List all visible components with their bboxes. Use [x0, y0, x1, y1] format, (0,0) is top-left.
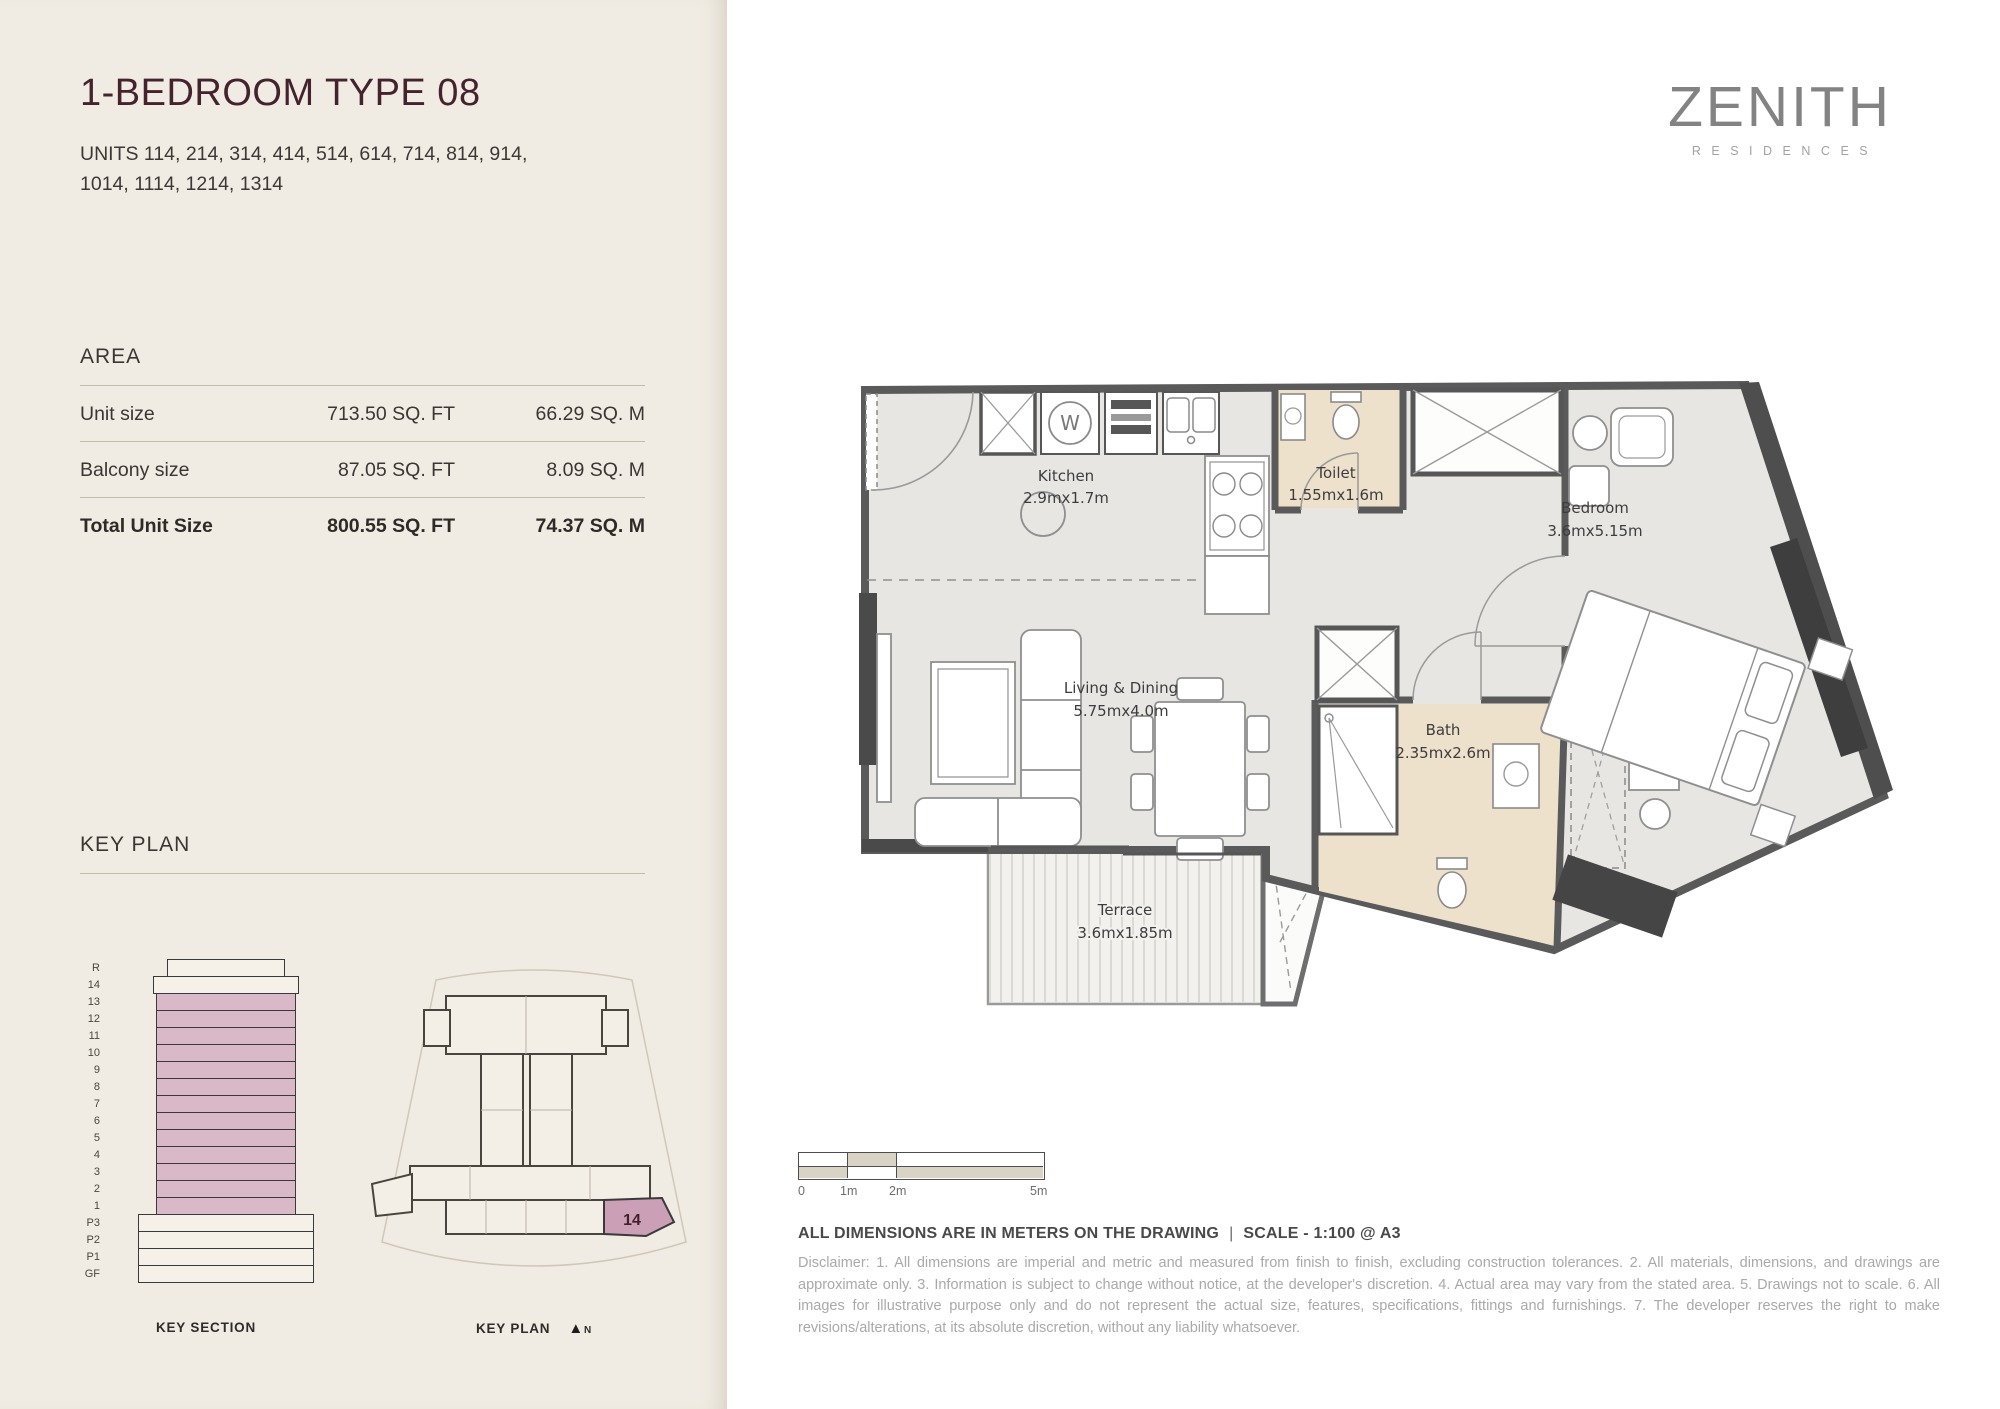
key-plan-unit-number: 14: [623, 1212, 641, 1229]
floor-box: [156, 1095, 296, 1114]
floor-box: [156, 1180, 296, 1199]
floor-label: 5: [70, 1130, 110, 1147]
floor-box: [138, 1248, 314, 1267]
desk-chair: [1640, 799, 1670, 829]
keyplan-heading: KEY PLAN: [80, 833, 645, 857]
floor-box: [156, 1112, 296, 1131]
floor-label: P1: [70, 1249, 110, 1266]
key-section-floor-1: 1: [70, 1198, 342, 1215]
key-section-floor-5: 5: [70, 1130, 342, 1147]
area-row-balcony-size: Balcony size 87.05 SQ. FT 8.09 SQ. M: [80, 442, 645, 497]
toilet-label: Toilet: [1315, 464, 1355, 482]
note-separator: |: [1219, 1225, 1243, 1242]
brand-logo: ZENITH RESIDENCES: [1652, 74, 1908, 158]
scale-bar: 0 1m 2m 5m: [798, 1152, 1048, 1202]
floor-label: P3: [70, 1215, 110, 1232]
floor-plan: W: [853, 378, 1900, 1040]
area-sqm: 8.09 SQ. M: [455, 459, 645, 482]
page-title: 1-BEDROOM TYPE 08: [80, 72, 481, 115]
floor-label: 14: [70, 977, 110, 994]
shaft-top: [1413, 390, 1561, 474]
page: 1-BEDROOM TYPE 08 UNITS 114, 214, 314, 4…: [0, 0, 2000, 1409]
floor-box: [156, 1197, 296, 1216]
floor-label: GF: [70, 1266, 110, 1283]
floor-label: 7: [70, 1096, 110, 1113]
key-section-floor-GF: GF: [70, 1266, 342, 1283]
key-section-diagram: R1413121110987654321P3P2P1GF: [70, 960, 342, 1283]
area-sqft: 800.55 SQ. FT: [265, 515, 455, 538]
area-row-unit-size: Unit size 713.50 SQ. FT 66.29 SQ. M: [80, 386, 645, 441]
bedroom-dims: 3.6mx5.15m: [1547, 522, 1642, 540]
key-section-floor-14: 14: [70, 977, 342, 994]
living-dining-label: Living & Dining: [1064, 679, 1178, 697]
coffee-table: [931, 662, 1015, 784]
terrace-label: Terrace: [1097, 901, 1153, 919]
floor-box: [156, 1027, 296, 1046]
key-section-floor-R: R: [70, 960, 342, 977]
stove-icon: [1105, 392, 1157, 454]
key-section-floor-P1: P1: [70, 1249, 342, 1266]
floor-box: [156, 1061, 296, 1080]
key-section-floor-2: 2: [70, 1181, 342, 1198]
floor-box: [138, 1214, 314, 1233]
floor-label: 12: [70, 1011, 110, 1028]
brand-name: ZENITH: [1652, 74, 1908, 140]
scale-tick-2m: 2m: [889, 1184, 906, 1198]
floor-box: [138, 1265, 314, 1284]
disclaimer-text: Disclaimer: 1. All dimensions are imperi…: [798, 1253, 1940, 1339]
floor-box: [167, 959, 285, 978]
floor-label: R: [70, 960, 110, 977]
area-label: Balcony size: [80, 459, 265, 482]
tv-console: [877, 634, 891, 802]
brand-subtitle: RESIDENCES: [1652, 144, 1908, 158]
scale-note-text: SCALE - 1:100 @ A3: [1243, 1225, 1400, 1242]
key-plan-caption-label: KEY PLAN: [476, 1321, 550, 1336]
floor-label: 8: [70, 1079, 110, 1096]
bath-dims: 2.35mx2.6m: [1395, 744, 1490, 762]
bath-wc-icon: [1437, 858, 1467, 908]
area-sqm: 74.37 SQ. M: [455, 515, 645, 538]
toilet-dims: 1.55mx1.6m: [1288, 486, 1383, 504]
floor-box: [156, 1129, 296, 1148]
floor-label: 9: [70, 1062, 110, 1079]
area-sqft: 713.50 SQ. FT: [265, 403, 455, 426]
key-section-floor-3: 3: [70, 1164, 342, 1181]
floor-label: 11: [70, 1028, 110, 1045]
svg-text:W: W: [1060, 411, 1080, 435]
toilet-wc-icon: [1331, 392, 1361, 402]
unit-numbers-line2: 1014, 1114, 1214, 1314: [80, 169, 527, 199]
scale-bar-box: [798, 1152, 1045, 1180]
sink-icon: [1163, 392, 1219, 454]
floor-box: [156, 1146, 296, 1165]
key-section-floor-11: 11: [70, 1028, 342, 1045]
bath-vanity-icon: [1493, 744, 1539, 808]
floor-label: 6: [70, 1113, 110, 1130]
unit-numbers-line1: UNITS 114, 214, 314, 414, 514, 614, 714,…: [80, 139, 527, 169]
floor-box: [156, 993, 296, 1012]
key-section-floor-9: 9: [70, 1062, 342, 1079]
kitchen-dims: 2.9mx1.7m: [1023, 489, 1109, 507]
keyplan-section-heading: KEY PLAN: [80, 833, 645, 874]
column-left: [859, 593, 877, 765]
key-section-floor-4: 4: [70, 1147, 342, 1164]
dimensions-note-text: ALL DIMENSIONS ARE IN METERS ON THE DRAW…: [798, 1225, 1219, 1242]
scale-tick-5m: 5m: [1030, 1184, 1047, 1198]
key-section-floor-13: 13: [70, 994, 342, 1011]
key-section-caption: KEY SECTION: [70, 1320, 342, 1335]
scale-tick-0: 0: [798, 1184, 805, 1198]
key-section-floor-12: 12: [70, 1011, 342, 1028]
key-plan-building: [372, 996, 650, 1234]
shower-icon: [1319, 706, 1397, 834]
floor-label: 1: [70, 1198, 110, 1215]
area-row-total: Total Unit Size 800.55 SQ. FT 74.37 SQ. …: [80, 498, 645, 553]
key-section-floor-7: 7: [70, 1096, 342, 1113]
area-sqft: 87.05 SQ. FT: [265, 459, 455, 482]
floor-label: 2: [70, 1181, 110, 1198]
armchair: [1611, 408, 1673, 466]
living-dining-dims: 5.75mx4.0m: [1073, 702, 1168, 720]
divider: [80, 873, 645, 874]
shaft-bath: [1317, 628, 1397, 700]
side-table-round: [1573, 416, 1607, 450]
kitchen-label: Kitchen: [1038, 467, 1094, 485]
floor-label: 4: [70, 1147, 110, 1164]
key-section-floor-10: 10: [70, 1045, 342, 1062]
area-section: AREA Unit size 713.50 SQ. FT 66.29 SQ. M…: [80, 345, 645, 553]
unit-numbers: UNITS 114, 214, 314, 414, 514, 614, 714,…: [80, 139, 527, 199]
key-section-floor-P2: P2: [70, 1232, 342, 1249]
terrace-dims: 3.6mx1.85m: [1077, 924, 1172, 942]
north-arrow-icon: ▲: [568, 1320, 584, 1337]
floor-box: [156, 1078, 296, 1097]
north-label: N: [584, 1325, 592, 1336]
key-section-floor-6: 6: [70, 1113, 342, 1130]
area-sqm: 66.29 SQ. M: [455, 403, 645, 426]
washer-icon: W: [1041, 392, 1099, 454]
floor-box: [156, 1010, 296, 1029]
area-label: Total Unit Size: [80, 515, 265, 538]
floor-box: [138, 1231, 314, 1250]
key-plan-diagram: 14: [358, 946, 710, 1306]
floor-box: [153, 976, 299, 995]
dining-table: [1155, 702, 1245, 836]
area-heading: AREA: [80, 345, 645, 369]
area-label: Unit size: [80, 403, 265, 426]
bath-label: Bath: [1426, 721, 1461, 739]
scale-bar-labels: 0 1m 2m 5m: [798, 1184, 1048, 1202]
floor-label: 10: [70, 1045, 110, 1062]
key-section-floor-8: 8: [70, 1079, 342, 1096]
floor-box: [156, 1163, 296, 1182]
floor-label: 13: [70, 994, 110, 1011]
floor-box: [156, 1044, 296, 1063]
sidebar: 1-BEDROOM TYPE 08 UNITS 114, 214, 314, 4…: [0, 0, 727, 1409]
hob-counter: [1205, 456, 1269, 614]
key-plan-caption: KEY PLAN▲N: [358, 1320, 710, 1337]
scale-tick-1m: 1m: [840, 1184, 857, 1198]
floor-label: P2: [70, 1232, 110, 1249]
dimensions-note: ALL DIMENSIONS ARE IN METERS ON THE DRAW…: [798, 1225, 1401, 1243]
floor-label: 3: [70, 1164, 110, 1181]
key-section-floor-P3: P3: [70, 1215, 342, 1232]
bedroom-label: Bedroom: [1561, 499, 1629, 517]
